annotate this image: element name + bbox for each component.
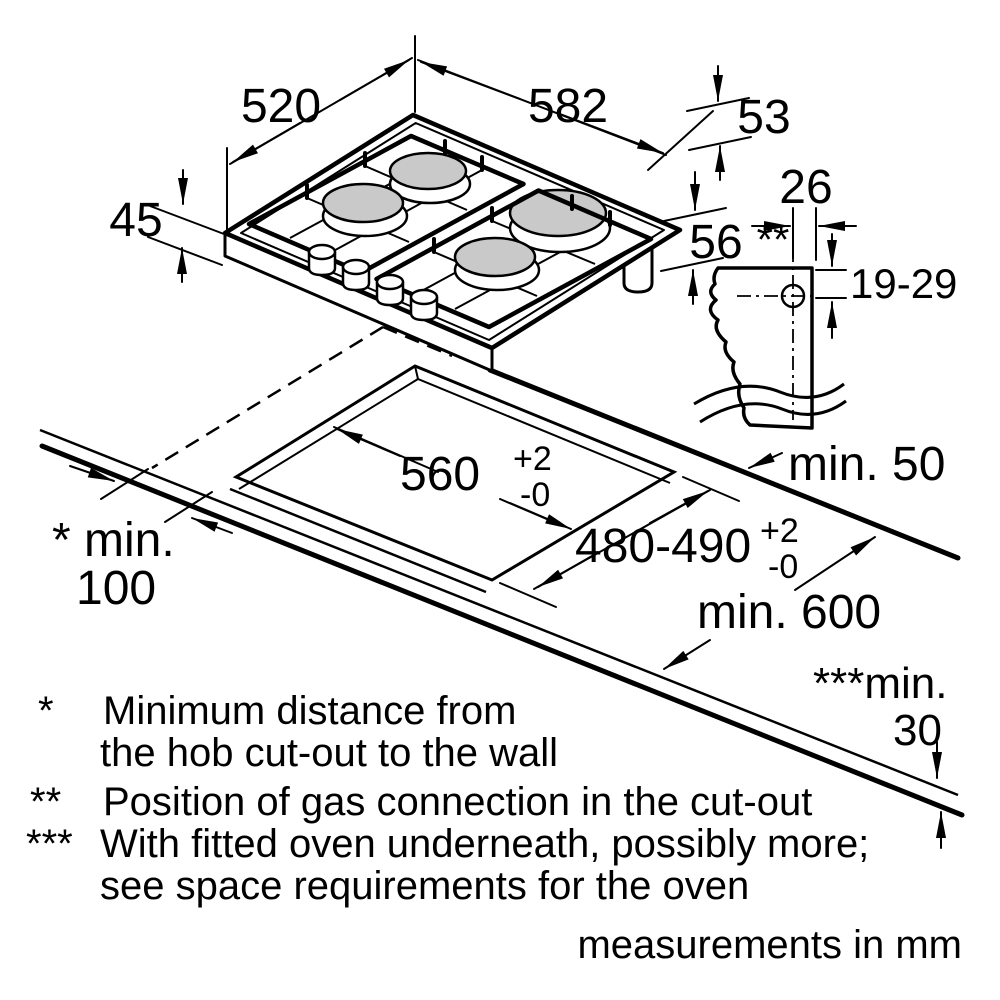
installation-diagram: 520 582 53 45 [0,0,1000,1000]
dim-label-56: 56 [689,216,742,269]
dim-label-min30-prefix: ***min. [813,659,948,708]
dim-rim-edge: 53 [687,66,791,180]
dim-oven-clearance: ***min. 30 [813,659,948,848]
dim-label-45: 45 [109,194,162,247]
dim-label-560: 560 [400,448,480,501]
gas-connection-detail [694,248,846,428]
dim-wall-clearance: min. 50 [749,438,945,491]
dim-label-560-tol-plus: +2 [513,440,552,478]
dim-label-19-29: 19-29 [850,260,957,307]
footnote1-symbol: * [38,689,54,733]
dim-label-480-tol-minus: -0 [768,548,798,586]
dim-label-min100-value: 100 [76,562,156,615]
diagram-canvas: 520 582 53 45 [0,0,1000,1000]
dim-label-53: 53 [737,91,790,144]
dim-label-582: 582 [528,80,608,133]
footnote3-line1: With fitted oven underneath, possibly mo… [100,822,869,866]
dim-label-26: 26 [779,161,832,214]
dim-height-above: 45 [109,170,224,282]
dim-label-min30-value: 30 [893,706,942,755]
footnote1-line2: the hob cut-out to the wall [100,731,558,775]
footnote3-symbol: *** [26,822,73,866]
footnote2-symbol: ** [30,780,61,824]
dim-gas-offset: 26 ** [752,161,856,263]
hob-drawing [225,115,680,371]
footnote1-line1: Minimum distance from [103,689,516,733]
gas-marker-asterisks: ** [757,216,790,263]
dim-label-520: 520 [241,80,321,133]
dim-label-480-tol-plus: +2 [760,512,799,550]
footnote3-line2: see space requirements for the oven [100,864,749,908]
footnote2-line1: Position of gas connection in the cut-ou… [103,780,812,824]
dim-label-560-tol-minus: -0 [520,476,550,514]
dim-label-min100-prefix: * min. [52,514,175,567]
dim-gas-vertical: 19-29 [816,234,957,338]
burner-left-cap [323,184,403,222]
dim-label-480-490: 480-490 [575,520,751,573]
footnotes: * Minimum distance from the hob cut-out … [26,689,962,967]
units-note: measurements in mm [577,923,962,967]
burner-back-cap [390,153,466,189]
dim-label-min600: min. 600 [697,586,881,639]
burner-front-cap [455,238,535,276]
dim-label-min50: min. 50 [788,438,945,491]
